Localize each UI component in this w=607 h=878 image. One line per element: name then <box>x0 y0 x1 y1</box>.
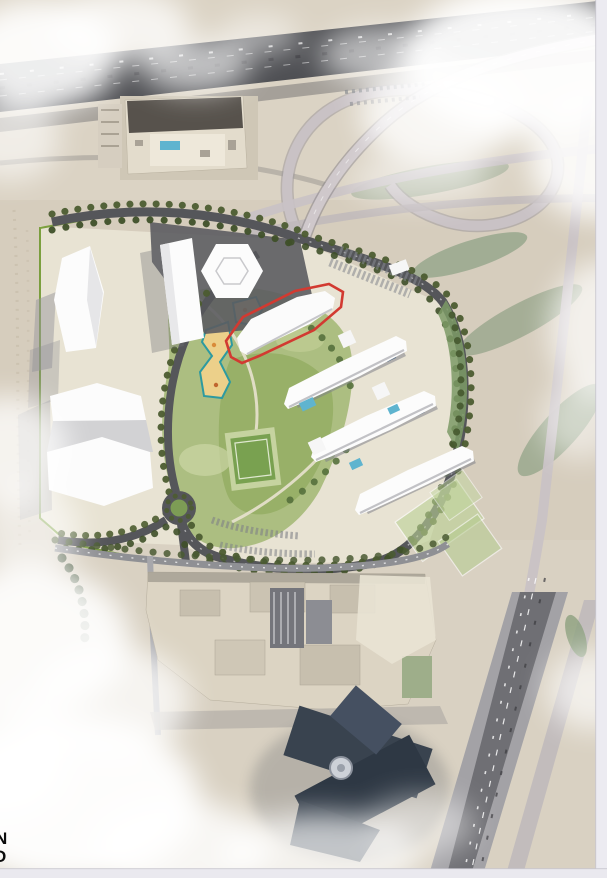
mall-roof-unit <box>300 645 360 685</box>
bottom-margin <box>0 869 607 878</box>
lawn-patch <box>179 444 231 476</box>
annex-building <box>98 104 122 168</box>
cloud <box>220 15 300 55</box>
right-margin-edge <box>595 0 596 878</box>
masterplan-aerial-map: N D <box>0 0 607 878</box>
sports-field <box>225 427 282 491</box>
play-equipment <box>212 343 216 347</box>
rooftop-pool <box>160 141 180 150</box>
mall-dark-roof <box>270 588 304 648</box>
existing-building-topleft <box>98 96 258 180</box>
play-equipment <box>214 383 218 387</box>
mall-dark-roof <box>306 600 332 644</box>
mall-roof-unit <box>180 590 220 616</box>
masterplan-aerial-screenshot: N D <box>0 0 607 878</box>
cloud <box>365 795 475 855</box>
annotation-line-1: N <box>0 829 7 848</box>
green-roof <box>402 656 432 698</box>
roof-unit <box>135 140 143 146</box>
roof-unit <box>200 150 210 157</box>
annotation-line-2: D <box>0 847 6 866</box>
cloud <box>350 155 490 205</box>
shaded-courtyard <box>127 97 243 133</box>
atrium-dome-core <box>337 764 345 772</box>
roof-unit <box>228 140 236 150</box>
roundabout-island <box>171 500 188 517</box>
right-margin <box>596 0 607 878</box>
bottom-margin-edge <box>0 868 607 869</box>
map-annotation: N D <box>0 829 7 866</box>
cloud <box>320 25 440 85</box>
mall-roof-unit <box>215 640 265 675</box>
